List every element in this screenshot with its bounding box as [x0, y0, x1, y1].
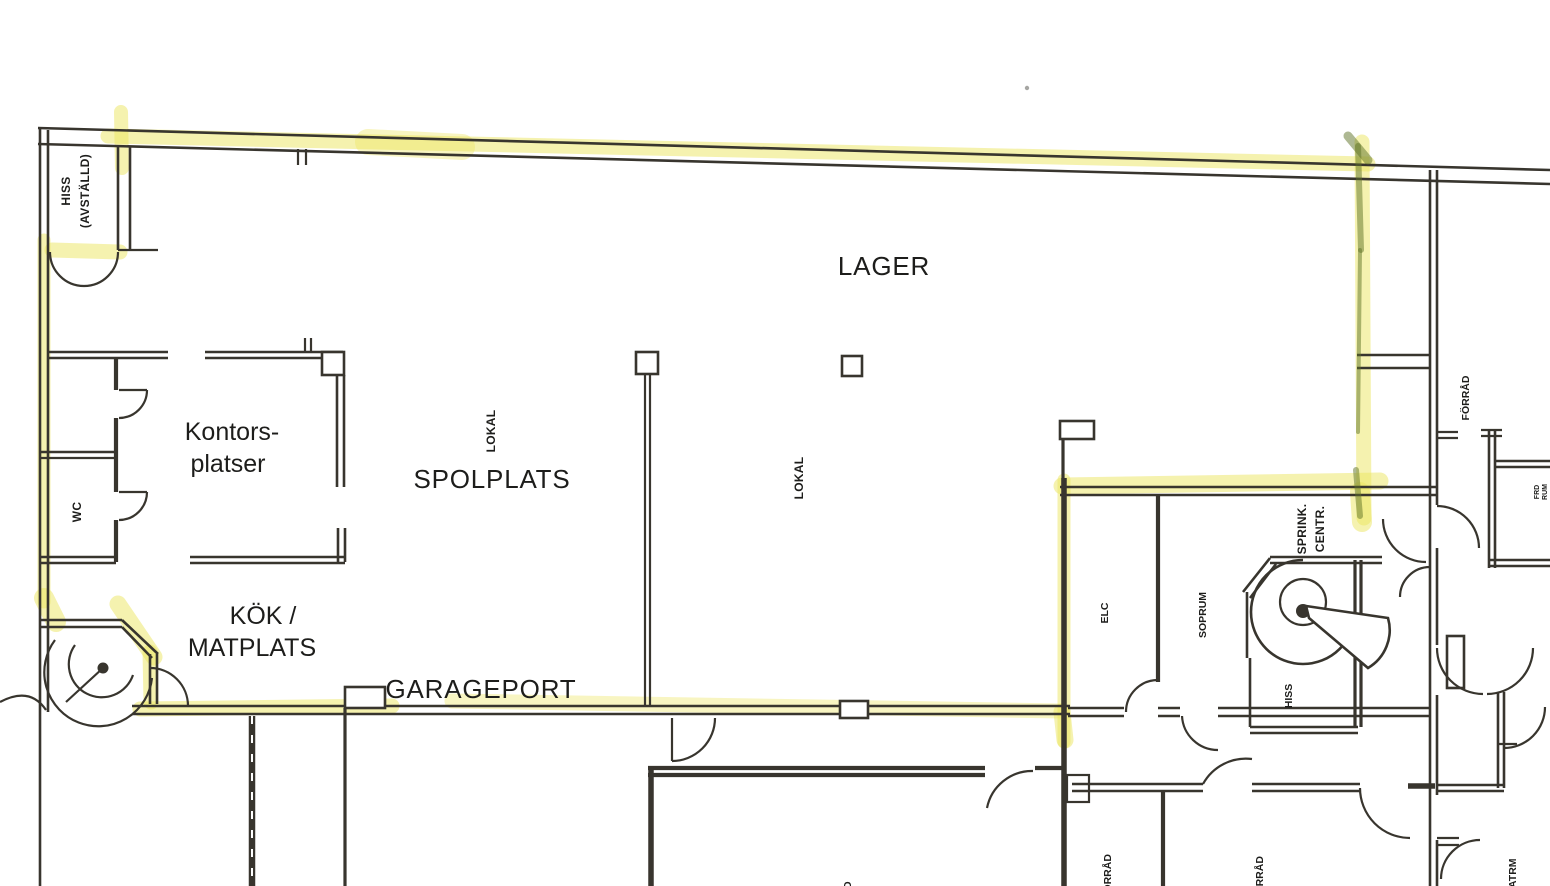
- label-edge-small-line1: FRD: [1534, 485, 1541, 499]
- label-kontorsplatser-line2: platser: [190, 450, 265, 478]
- label-hiss-shaft-line2: (AVSTÄLLD): [77, 154, 92, 228]
- label-edge-small-line2: RUM: [1542, 484, 1549, 500]
- walls: [0, 86, 1550, 886]
- label-forrad-bottom-left: FÖRRÅD: [1101, 854, 1114, 886]
- floor-plan-scan: LAGER SPOLPLATS GARAGEPORT Kontors- plat…: [0, 0, 1550, 886]
- floor-plan-drawing: LAGER SPOLPLATS GARAGEPORT Kontors- plat…: [0, 0, 1550, 886]
- label-partial-bottom-right: ATRM: [1507, 858, 1519, 886]
- label-spolplats: SPOLPLATS: [413, 464, 570, 494]
- label-sprink-line2: CENTR.: [1313, 506, 1327, 552]
- scan-speck: [1025, 86, 1029, 90]
- label-kok-line1: KÖK /: [230, 602, 297, 630]
- label-lokal-a: LOKAL: [484, 410, 498, 453]
- label-wc: WC: [70, 502, 84, 523]
- label-forrad-bottom-mid: FÖRRÅD: [1253, 856, 1266, 886]
- label-kontorsplatser-line1: Kontors-: [185, 418, 279, 446]
- label-elc: ELC: [1099, 602, 1111, 623]
- label-partial-bottom-center: D: [842, 881, 854, 886]
- label-forrad-right: FÖRRÅD: [1459, 375, 1472, 420]
- label-kok-line2: MATPLATS: [188, 634, 316, 662]
- label-hiss-shaft-line1: HISS: [59, 176, 73, 205]
- label-hiss-small: HISS: [1283, 684, 1295, 709]
- label-garageport: GARAGEPORT: [385, 674, 576, 704]
- label-lokal-b: LOKAL: [792, 457, 806, 500]
- label-soprum: SOPRUM: [1197, 592, 1209, 638]
- label-lager: LAGER: [838, 251, 930, 281]
- label-sprink-line1: SPRINK.: [1295, 504, 1309, 555]
